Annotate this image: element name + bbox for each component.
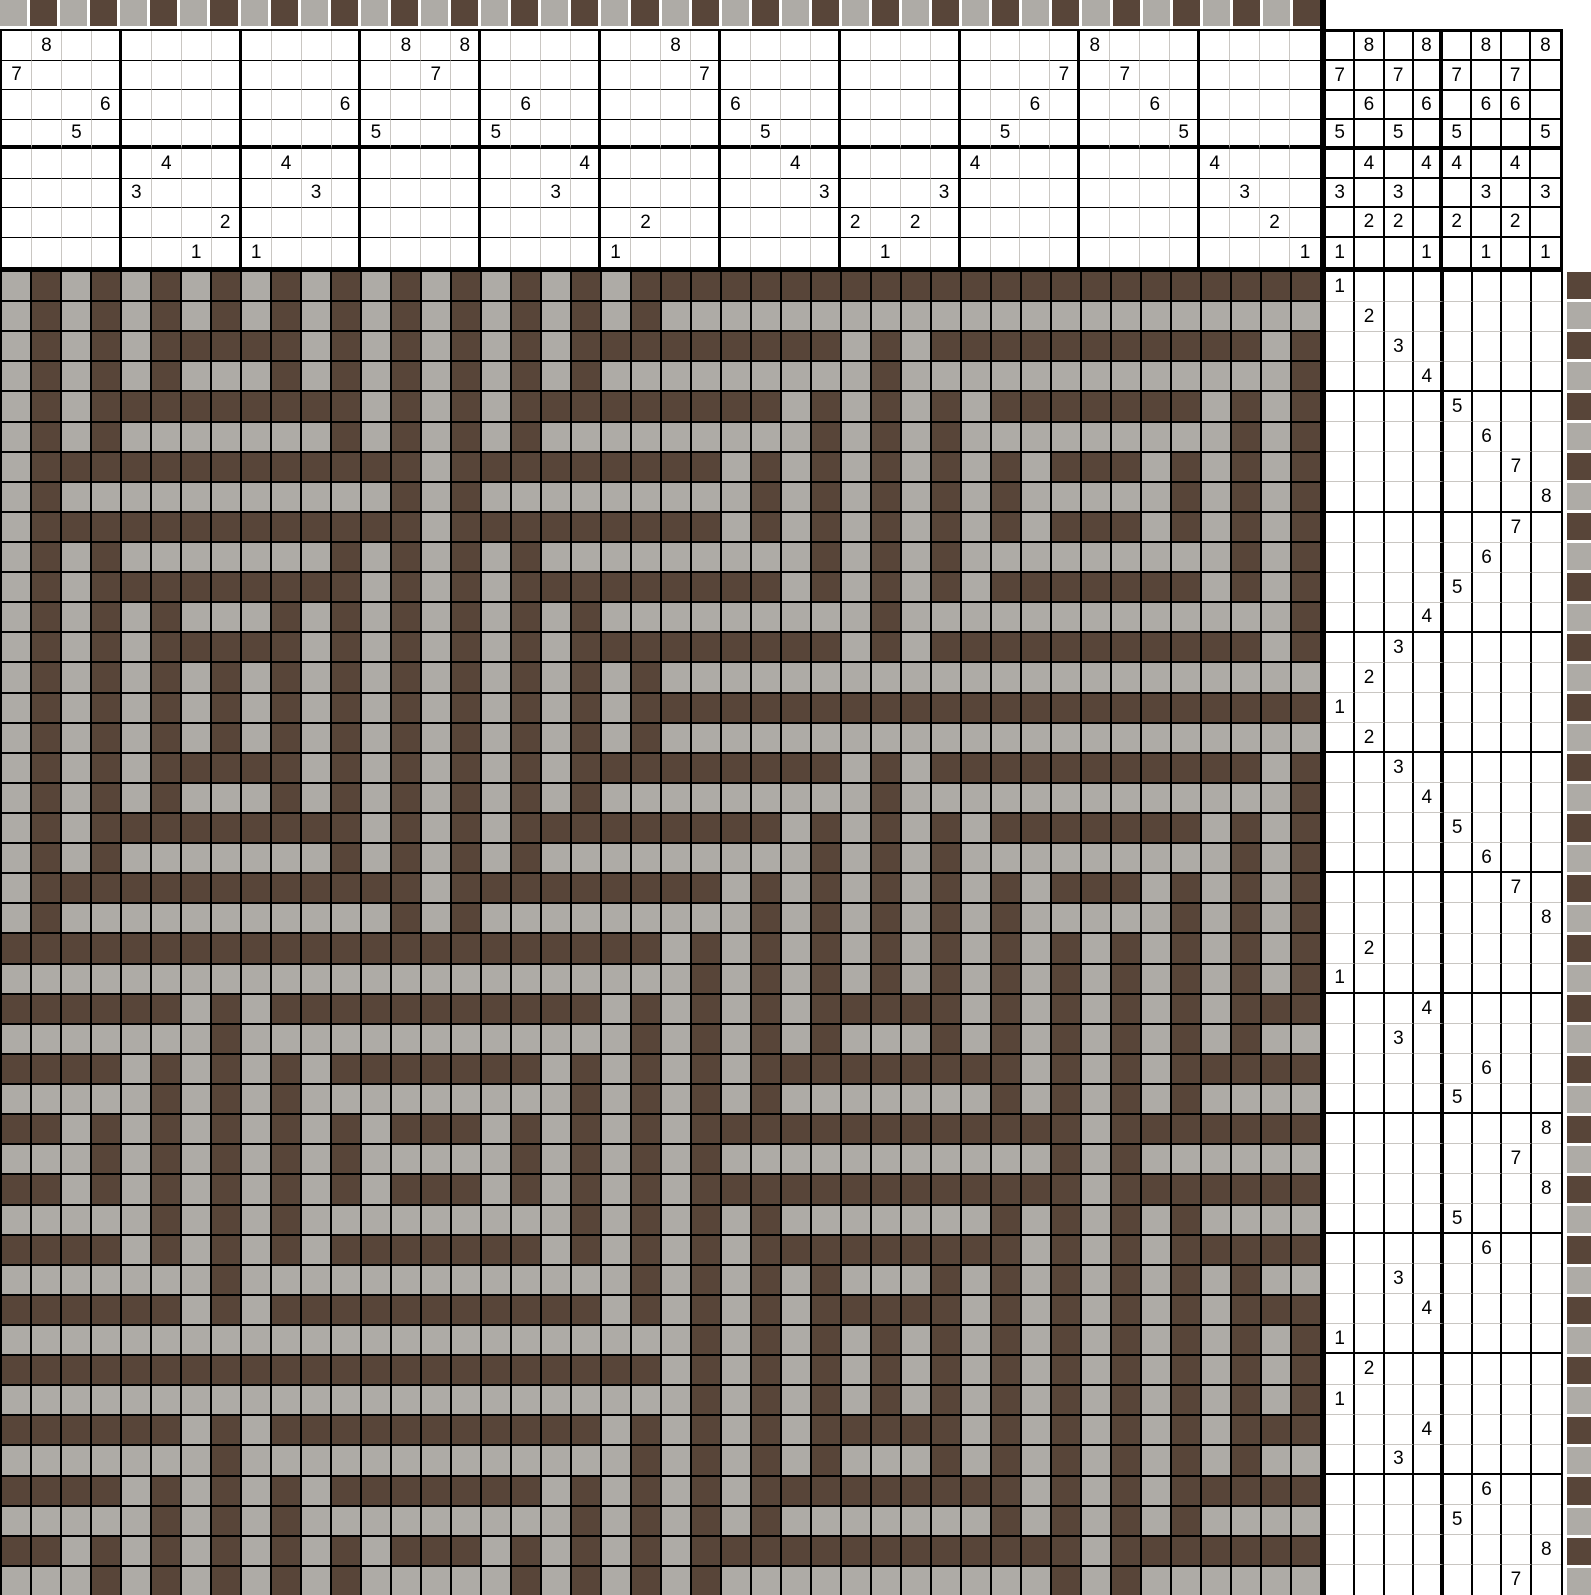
weft-color-cell[interactable] bbox=[1567, 1327, 1591, 1354]
treadling-cell[interactable] bbox=[1385, 1354, 1414, 1384]
threading-mark-cell[interactable]: 8 bbox=[391, 31, 421, 61]
tieup-mark-cell[interactable]: 6 bbox=[1355, 91, 1384, 120]
treadling-cell[interactable] bbox=[1414, 723, 1443, 753]
tieup-mark-cell[interactable]: 8 bbox=[1414, 32, 1443, 61]
threading-cell[interactable] bbox=[1080, 208, 1110, 238]
threading-cell[interactable] bbox=[212, 120, 242, 150]
tieup-cell[interactable] bbox=[1414, 208, 1443, 237]
treadling-cell[interactable] bbox=[1326, 1144, 1355, 1174]
treadling-cell[interactable] bbox=[1532, 1415, 1561, 1445]
threading-cell[interactable] bbox=[721, 31, 751, 61]
threading-cell[interactable] bbox=[212, 61, 242, 91]
threading-cell[interactable] bbox=[481, 238, 511, 268]
treadling-cell[interactable] bbox=[1473, 1415, 1502, 1445]
threading-cell[interactable] bbox=[32, 149, 62, 179]
weft-color-cell[interactable] bbox=[1567, 814, 1591, 841]
treadling-mark-cell[interactable]: 6 bbox=[1473, 422, 1502, 452]
treadling-cell[interactable] bbox=[1532, 332, 1561, 362]
treadling-cell[interactable] bbox=[1502, 543, 1531, 573]
threading-mark-cell[interactable]: 8 bbox=[661, 31, 691, 61]
treadling-cell[interactable] bbox=[1414, 1445, 1443, 1475]
weft-color-cell[interactable] bbox=[1567, 845, 1591, 872]
threading-cell[interactable] bbox=[1200, 238, 1230, 268]
weft-color-cell[interactable] bbox=[1567, 302, 1591, 329]
warp-color-cell[interactable] bbox=[1082, 0, 1109, 26]
treadling-cell[interactable] bbox=[1414, 543, 1443, 573]
tieup-mark-cell[interactable]: 5 bbox=[1443, 120, 1472, 149]
treadling-cell[interactable] bbox=[1326, 422, 1355, 452]
threading-cell[interactable] bbox=[272, 120, 302, 150]
threading-cell[interactable] bbox=[961, 179, 991, 209]
warp-color-cell[interactable] bbox=[631, 0, 658, 26]
treadling-cell[interactable] bbox=[1473, 1385, 1502, 1415]
threading-mark-cell[interactable]: 2 bbox=[631, 208, 661, 238]
treadling-cell[interactable] bbox=[1532, 1565, 1561, 1595]
threading-cell[interactable] bbox=[541, 120, 571, 150]
weft-color-cell[interactable] bbox=[1567, 1477, 1591, 1504]
treadling-cell[interactable] bbox=[1473, 392, 1502, 422]
threading-cell[interactable] bbox=[661, 61, 691, 91]
tieup-cell[interactable] bbox=[1385, 32, 1414, 61]
treadling-cell[interactable] bbox=[1414, 873, 1443, 903]
weft-color-cell[interactable] bbox=[1567, 995, 1591, 1022]
treadling-cell[interactable] bbox=[1444, 934, 1473, 964]
treadling-cell[interactable] bbox=[1355, 1415, 1384, 1445]
warp-color-cell[interactable] bbox=[541, 0, 568, 26]
weft-color-cell[interactable] bbox=[1567, 935, 1591, 962]
weft-color-cell[interactable] bbox=[1567, 1297, 1591, 1324]
threading-mark-cell[interactable]: 8 bbox=[32, 31, 62, 61]
threading-mark-cell[interactable]: 6 bbox=[332, 90, 362, 120]
tieup-cell[interactable] bbox=[1326, 150, 1355, 179]
treadling-cell[interactable] bbox=[1444, 1385, 1473, 1415]
threading-cell[interactable] bbox=[212, 90, 242, 120]
treadling-cell[interactable] bbox=[1414, 663, 1443, 693]
threading-cell[interactable] bbox=[32, 90, 62, 120]
treadling-cell[interactable] bbox=[1355, 1505, 1384, 1535]
threading-cell[interactable] bbox=[242, 31, 272, 61]
treadling-cell[interactable] bbox=[1414, 843, 1443, 873]
threading-cell[interactable] bbox=[661, 238, 691, 268]
threading-mark-cell[interactable]: 7 bbox=[2, 61, 32, 91]
treadling-cell[interactable] bbox=[1502, 1445, 1531, 1475]
treadling-cell[interactable] bbox=[1326, 813, 1355, 843]
treadling-cell[interactable] bbox=[1326, 1264, 1355, 1294]
weft-color-cell[interactable] bbox=[1567, 754, 1591, 781]
threading-cell[interactable] bbox=[601, 31, 631, 61]
treadling-cell[interactable] bbox=[1326, 1024, 1355, 1054]
treadling-cell[interactable] bbox=[1326, 1565, 1355, 1595]
threading-cell[interactable] bbox=[781, 179, 811, 209]
weft-color-cell[interactable] bbox=[1567, 875, 1591, 902]
treadling-cell[interactable] bbox=[1502, 994, 1531, 1024]
treadling-cell[interactable] bbox=[1385, 903, 1414, 933]
warp-color-cell[interactable] bbox=[1143, 0, 1170, 26]
threading-cell[interactable] bbox=[391, 120, 421, 150]
threading-cell[interactable] bbox=[751, 179, 781, 209]
treadling-cell[interactable] bbox=[1473, 272, 1502, 302]
treadling-cell[interactable] bbox=[1355, 1174, 1384, 1204]
treadling-cell[interactable] bbox=[1532, 723, 1561, 753]
threading-cell[interactable] bbox=[391, 179, 421, 209]
treadling-cell[interactable] bbox=[1355, 1294, 1384, 1324]
tieup-cell[interactable] bbox=[1531, 150, 1560, 179]
threading-cell[interactable] bbox=[182, 31, 212, 61]
treadling-cell[interactable] bbox=[1444, 422, 1473, 452]
treadling-cell[interactable] bbox=[1532, 1204, 1561, 1234]
threading-cell[interactable] bbox=[841, 238, 871, 268]
threading-mark-cell[interactable]: 7 bbox=[1110, 61, 1140, 91]
treadling-cell[interactable] bbox=[1385, 603, 1414, 633]
treadling-cell[interactable] bbox=[1502, 1385, 1531, 1415]
treadling-cell[interactable] bbox=[1532, 362, 1561, 392]
threading-cell[interactable] bbox=[511, 238, 541, 268]
treadling-cell[interactable] bbox=[1502, 1264, 1531, 1294]
treadling-cell[interactable] bbox=[1473, 633, 1502, 663]
tieup-cell[interactable] bbox=[1472, 208, 1501, 237]
treadling-cell[interactable] bbox=[1385, 482, 1414, 512]
treadling-cell[interactable] bbox=[1502, 392, 1531, 422]
threading-cell[interactable] bbox=[1260, 179, 1290, 209]
treadling-cell[interactable] bbox=[1326, 1294, 1355, 1324]
treadling-cell[interactable] bbox=[1532, 1294, 1561, 1324]
threading-cell[interactable] bbox=[721, 61, 751, 91]
treadling-cell[interactable] bbox=[1532, 663, 1561, 693]
threading-cell[interactable] bbox=[601, 61, 631, 91]
weft-color-cell[interactable] bbox=[1567, 1538, 1591, 1565]
treadling-cell[interactable] bbox=[1444, 1054, 1473, 1084]
treadling-cell[interactable] bbox=[1414, 903, 1443, 933]
treadling-cell[interactable] bbox=[1502, 1475, 1531, 1505]
tieup-cell[interactable] bbox=[1443, 238, 1472, 267]
treadling-cell[interactable] bbox=[1532, 934, 1561, 964]
tieup-cell[interactable] bbox=[1326, 208, 1355, 237]
threading-cell[interactable] bbox=[212, 31, 242, 61]
treadling-cell[interactable] bbox=[1444, 1535, 1473, 1565]
treadling-cell[interactable] bbox=[1444, 1475, 1473, 1505]
treadling-cell[interactable] bbox=[1385, 513, 1414, 543]
threading-cell[interactable] bbox=[32, 61, 62, 91]
treadling-cell[interactable] bbox=[1326, 332, 1355, 362]
tieup-mark-cell[interactable]: 1 bbox=[1531, 238, 1560, 267]
treadling-cell[interactable] bbox=[1473, 302, 1502, 332]
threading-cell[interactable] bbox=[122, 61, 152, 91]
threading-cell[interactable] bbox=[272, 90, 302, 120]
treadling-mark-cell[interactable]: 3 bbox=[1385, 753, 1414, 783]
treadling-cell[interactable] bbox=[1385, 392, 1414, 422]
treadling-cell[interactable] bbox=[1355, 603, 1384, 633]
treadling-cell[interactable] bbox=[1355, 813, 1384, 843]
threading-cell[interactable] bbox=[901, 179, 931, 209]
warp-color-cell[interactable] bbox=[451, 0, 478, 26]
warp-color-cell[interactable] bbox=[812, 0, 839, 26]
threading-cell[interactable] bbox=[92, 208, 122, 238]
threading-cell[interactable] bbox=[1110, 31, 1140, 61]
threading-cell[interactable] bbox=[152, 90, 182, 120]
treadling-cell[interactable] bbox=[1502, 1174, 1531, 1204]
threading-cell[interactable] bbox=[92, 238, 122, 268]
threading-cell[interactable] bbox=[901, 238, 931, 268]
treadling-mark-cell[interactable]: 5 bbox=[1444, 813, 1473, 843]
tieup-mark-cell[interactable]: 3 bbox=[1326, 179, 1355, 208]
tieup-mark-cell[interactable]: 2 bbox=[1355, 208, 1384, 237]
treadling-cell[interactable] bbox=[1355, 783, 1384, 813]
threading-cell[interactable] bbox=[62, 208, 92, 238]
threading-cell[interactable] bbox=[182, 179, 212, 209]
warp-color-cell[interactable] bbox=[511, 0, 538, 26]
treadling-cell[interactable] bbox=[1385, 723, 1414, 753]
treadling-cell[interactable] bbox=[1326, 633, 1355, 663]
threading-cell[interactable] bbox=[361, 90, 391, 120]
threading-cell[interactable] bbox=[691, 149, 721, 179]
threading-cell[interactable] bbox=[92, 31, 122, 61]
warp-color-cell[interactable] bbox=[241, 0, 268, 26]
treadling-cell[interactable] bbox=[1473, 1505, 1502, 1535]
treadling-cell[interactable] bbox=[1532, 693, 1561, 723]
threading-cell[interactable] bbox=[1050, 31, 1080, 61]
threading-cell[interactable] bbox=[1290, 120, 1320, 150]
threading-cell[interactable] bbox=[62, 90, 92, 120]
threading-mark-cell[interactable]: 4 bbox=[272, 149, 302, 179]
threading-cell[interactable] bbox=[302, 238, 332, 268]
threading-cell[interactable] bbox=[871, 61, 901, 91]
threading-cell[interactable] bbox=[1260, 61, 1290, 91]
threading-cell[interactable] bbox=[421, 31, 451, 61]
treadling-cell[interactable] bbox=[1414, 452, 1443, 482]
treadling-cell[interactable] bbox=[1385, 994, 1414, 1024]
threading-cell[interactable] bbox=[811, 238, 841, 268]
treadling-cell[interactable] bbox=[1473, 813, 1502, 843]
threading-cell[interactable] bbox=[2, 120, 32, 150]
treadling-cell[interactable] bbox=[1385, 1054, 1414, 1084]
treadling-mark-cell[interactable]: 1 bbox=[1326, 272, 1355, 302]
treadling-cell[interactable] bbox=[1326, 1415, 1355, 1445]
threading-cell[interactable] bbox=[332, 149, 362, 179]
treadling-cell[interactable] bbox=[1355, 693, 1384, 723]
threading-cell[interactable] bbox=[1050, 238, 1080, 268]
treadling-cell[interactable] bbox=[1414, 964, 1443, 994]
threading-cell[interactable] bbox=[691, 179, 721, 209]
treadling-cell[interactable] bbox=[1355, 1324, 1384, 1354]
threading-cell[interactable] bbox=[1200, 120, 1230, 150]
weft-color-cell[interactable] bbox=[1567, 1176, 1591, 1203]
treadling-cell[interactable] bbox=[1414, 1114, 1443, 1144]
warp-color-cell[interactable] bbox=[120, 0, 147, 26]
threading-cell[interactable] bbox=[332, 179, 362, 209]
weft-color-cell[interactable] bbox=[1567, 1086, 1591, 1113]
threading-cell[interactable] bbox=[1110, 208, 1140, 238]
threading-cell[interactable] bbox=[332, 120, 362, 150]
treadling-cell[interactable] bbox=[1444, 452, 1473, 482]
threading-cell[interactable] bbox=[1260, 90, 1290, 120]
treadling-cell[interactable] bbox=[1414, 1054, 1443, 1084]
treadling-cell[interactable] bbox=[1355, 873, 1384, 903]
threading-cell[interactable] bbox=[242, 120, 272, 150]
threading-mark-cell[interactable]: 6 bbox=[721, 90, 751, 120]
tieup-mark-cell[interactable]: 4 bbox=[1443, 150, 1472, 179]
warp-color-cell[interactable] bbox=[0, 0, 27, 26]
treadling-mark-cell[interactable]: 6 bbox=[1473, 1054, 1502, 1084]
treadling-cell[interactable] bbox=[1502, 603, 1531, 633]
treadling-cell[interactable] bbox=[1502, 573, 1531, 603]
threading-cell[interactable] bbox=[751, 149, 781, 179]
threading-cell[interactable] bbox=[421, 120, 451, 150]
treadling-cell[interactable] bbox=[1502, 1024, 1531, 1054]
threading-mark-cell[interactable]: 5 bbox=[361, 120, 391, 150]
threading-cell[interactable] bbox=[511, 179, 541, 209]
threading-cell[interactable] bbox=[961, 31, 991, 61]
threading-cell[interactable] bbox=[32, 238, 62, 268]
treadling-cell[interactable] bbox=[1414, 633, 1443, 663]
treadling-cell[interactable] bbox=[1355, 994, 1384, 1024]
treadling-mark-cell[interactable]: 5 bbox=[1444, 392, 1473, 422]
tieup-cell[interactable] bbox=[1531, 208, 1560, 237]
threading-cell[interactable] bbox=[361, 179, 391, 209]
threading-mark-cell[interactable]: 3 bbox=[1230, 179, 1260, 209]
threading-mark-cell[interactable]: 1 bbox=[871, 238, 901, 268]
threading-cell[interactable] bbox=[1110, 179, 1140, 209]
treadling-cell[interactable] bbox=[1326, 934, 1355, 964]
threading-cell[interactable] bbox=[1290, 149, 1320, 179]
treadling-cell[interactable] bbox=[1473, 1114, 1502, 1144]
threading-cell[interactable] bbox=[122, 120, 152, 150]
treadling-cell[interactable] bbox=[1532, 452, 1561, 482]
threading-cell[interactable] bbox=[212, 179, 242, 209]
threading-cell[interactable] bbox=[1230, 61, 1260, 91]
threading-cell[interactable] bbox=[182, 120, 212, 150]
treadling-mark-cell[interactable]: 7 bbox=[1502, 1565, 1531, 1595]
threading-cell[interactable] bbox=[1050, 120, 1080, 150]
threading-cell[interactable] bbox=[242, 179, 272, 209]
treadling-cell[interactable] bbox=[1473, 452, 1502, 482]
treadling-cell[interactable] bbox=[1502, 813, 1531, 843]
threading-cell[interactable] bbox=[1170, 31, 1200, 61]
tieup-mark-cell[interactable]: 6 bbox=[1472, 91, 1501, 120]
threading-mark-cell[interactable]: 4 bbox=[781, 149, 811, 179]
threading-cell[interactable] bbox=[991, 238, 1021, 268]
treadling-mark-cell[interactable]: 4 bbox=[1414, 1294, 1443, 1324]
tieup-mark-cell[interactable]: 5 bbox=[1531, 120, 1560, 149]
treadling-cell[interactable] bbox=[1502, 783, 1531, 813]
treadling-cell[interactable] bbox=[1385, 1084, 1414, 1114]
treadling-cell[interactable] bbox=[1414, 693, 1443, 723]
weft-color-cell[interactable] bbox=[1567, 573, 1591, 600]
threading-cell[interactable] bbox=[391, 149, 421, 179]
threading-cell[interactable] bbox=[272, 61, 302, 91]
treadling-mark-cell[interactable]: 6 bbox=[1473, 843, 1502, 873]
threading-cell[interactable] bbox=[1170, 61, 1200, 91]
treadling-cell[interactable] bbox=[1444, 964, 1473, 994]
threading-mark-cell[interactable]: 3 bbox=[122, 179, 152, 209]
threading-cell[interactable] bbox=[182, 61, 212, 91]
treadling-cell[interactable] bbox=[1355, 1114, 1384, 1144]
treadling-cell[interactable] bbox=[1414, 272, 1443, 302]
threading-cell[interactable] bbox=[242, 90, 272, 120]
tieup-mark-cell[interactable]: 2 bbox=[1443, 208, 1472, 237]
weft-color-cell[interactable] bbox=[1567, 664, 1591, 691]
warp-color-cell[interactable] bbox=[391, 0, 418, 26]
treadling-mark-cell[interactable]: 3 bbox=[1385, 332, 1414, 362]
treadling-cell[interactable] bbox=[1414, 1324, 1443, 1354]
treadling-cell[interactable] bbox=[1326, 513, 1355, 543]
treadling-cell[interactable] bbox=[1532, 1475, 1561, 1505]
treadling-cell[interactable] bbox=[1414, 422, 1443, 452]
threading-cell[interactable] bbox=[361, 208, 391, 238]
tieup-mark-cell[interactable]: 1 bbox=[1326, 238, 1355, 267]
threading-cell[interactable] bbox=[811, 31, 841, 61]
threading-cell[interactable] bbox=[152, 61, 182, 91]
threading-cell[interactable] bbox=[1110, 90, 1140, 120]
warp-color-cell[interactable] bbox=[150, 0, 177, 26]
threading-cell[interactable] bbox=[1140, 31, 1170, 61]
warp-color-cell[interactable] bbox=[210, 0, 237, 26]
threading-cell[interactable] bbox=[1170, 238, 1200, 268]
threading-cell[interactable] bbox=[841, 179, 871, 209]
threading-cell[interactable] bbox=[1260, 120, 1290, 150]
warp-color-cell[interactable] bbox=[1113, 0, 1140, 26]
treadling-cell[interactable] bbox=[1385, 1204, 1414, 1234]
treadling-cell[interactable] bbox=[1385, 873, 1414, 903]
treadling-cell[interactable] bbox=[1355, 1024, 1384, 1054]
treadling-cell[interactable] bbox=[1385, 1324, 1414, 1354]
tieup-cell[interactable] bbox=[1355, 179, 1384, 208]
treadling-cell[interactable] bbox=[1444, 1565, 1473, 1595]
weft-color-cell[interactable] bbox=[1567, 1146, 1591, 1173]
threading-cell[interactable] bbox=[212, 238, 242, 268]
treadling-cell[interactable] bbox=[1532, 813, 1561, 843]
weft-color-cell[interactable] bbox=[1567, 1568, 1591, 1595]
warp-color-cell[interactable] bbox=[992, 0, 1019, 26]
threading-cell[interactable] bbox=[122, 31, 152, 61]
treadling-cell[interactable] bbox=[1414, 1505, 1443, 1535]
treadling-cell[interactable] bbox=[1532, 1054, 1561, 1084]
tieup-cell[interactable] bbox=[1472, 150, 1501, 179]
treadling-cell[interactable] bbox=[1473, 723, 1502, 753]
treadling-cell[interactable] bbox=[1355, 1204, 1384, 1234]
treadling-cell[interactable] bbox=[1532, 302, 1561, 332]
threading-cell[interactable] bbox=[781, 238, 811, 268]
threading-cell[interactable] bbox=[541, 61, 571, 91]
threading-cell[interactable] bbox=[961, 120, 991, 150]
threading-cell[interactable] bbox=[901, 61, 931, 91]
treadling-cell[interactable] bbox=[1444, 543, 1473, 573]
warp-color-cell[interactable] bbox=[481, 0, 508, 26]
threading-cell[interactable] bbox=[1170, 90, 1200, 120]
treadling-cell[interactable] bbox=[1473, 934, 1502, 964]
treadling-cell[interactable] bbox=[1385, 1114, 1414, 1144]
warp-color-cell[interactable] bbox=[932, 0, 959, 26]
threading-cell[interactable] bbox=[391, 238, 421, 268]
treadling-cell[interactable] bbox=[1473, 573, 1502, 603]
treadling-mark-cell[interactable]: 4 bbox=[1414, 994, 1443, 1024]
treadling-cell[interactable] bbox=[1473, 663, 1502, 693]
treadling-cell[interactable] bbox=[1414, 1234, 1443, 1264]
treadling-cell[interactable] bbox=[1414, 482, 1443, 512]
threading-mark-cell[interactable]: 1 bbox=[601, 238, 631, 268]
treadling-cell[interactable] bbox=[1532, 1144, 1561, 1174]
treadling-cell[interactable] bbox=[1385, 1174, 1414, 1204]
treadling-cell[interactable] bbox=[1326, 482, 1355, 512]
treadling-cell[interactable] bbox=[1326, 1174, 1355, 1204]
threading-cell[interactable] bbox=[242, 61, 272, 91]
threading-cell[interactable] bbox=[451, 238, 481, 268]
threading-mark-cell[interactable]: 6 bbox=[511, 90, 541, 120]
treadling-cell[interactable] bbox=[1502, 1354, 1531, 1384]
treadling-cell[interactable] bbox=[1532, 272, 1561, 302]
tieup-cell[interactable] bbox=[1355, 238, 1384, 267]
treadling-mark-cell[interactable]: 7 bbox=[1502, 873, 1531, 903]
threading-cell[interactable] bbox=[1020, 120, 1050, 150]
